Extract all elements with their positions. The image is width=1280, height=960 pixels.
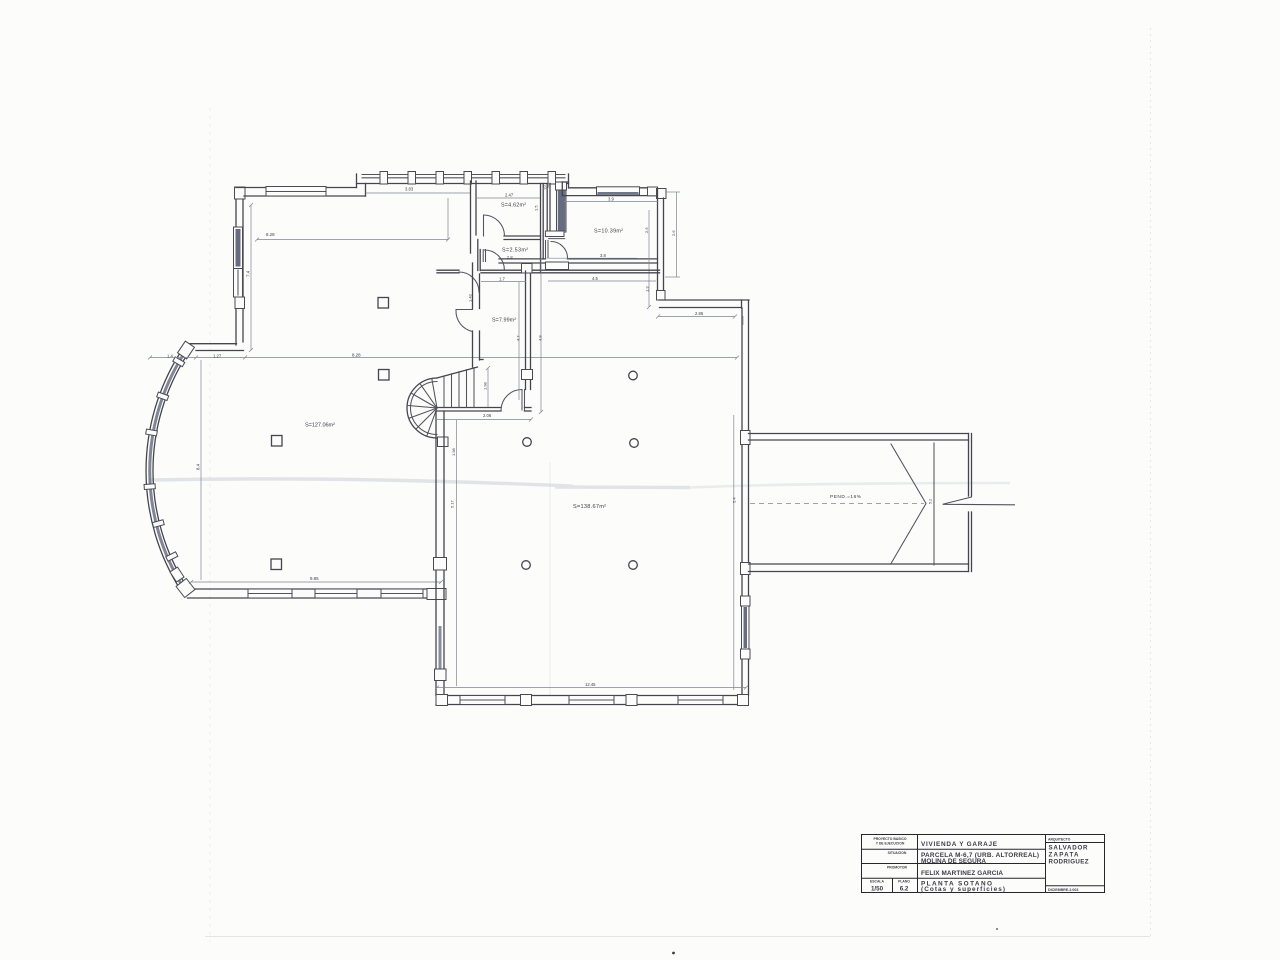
- svg-text:PLANO: PLANO: [898, 880, 910, 884]
- svg-text:2.8: 2.8: [507, 255, 513, 260]
- svg-text:DICIEMBRE-2.003: DICIEMBRE-2.003: [1048, 888, 1078, 892]
- svg-text:1.98: 1.98: [451, 447, 456, 456]
- svg-text:4.5: 4.5: [592, 276, 598, 281]
- svg-text:4.7: 4.7: [516, 335, 521, 341]
- svg-text:S=127.06m²: S=127.06m²: [305, 423, 335, 429]
- svg-text:2.85: 2.85: [695, 311, 704, 316]
- svg-text:8.28: 8.28: [266, 232, 275, 237]
- svg-text:PROMOTOR: PROMOTOR: [887, 866, 907, 870]
- svg-text:MOLINA DE SEGURA: MOLINA DE SEGURA: [921, 858, 986, 865]
- svg-text:1.3: 1.3: [645, 286, 650, 292]
- svg-text:2.6: 2.6: [644, 227, 649, 233]
- svg-text:8.28: 8.28: [352, 353, 361, 358]
- svg-text:2.06: 2.06: [483, 413, 492, 418]
- svg-text:S=10.39m²: S=10.39m²: [594, 229, 623, 235]
- svg-text:7.4: 7.4: [246, 270, 251, 277]
- svg-text:SALVADOR: SALVADOR: [1049, 845, 1089, 852]
- svg-text:1.98: 1.98: [483, 381, 488, 390]
- svg-text:5.2: 5.2: [929, 499, 933, 504]
- svg-text:3.8: 3.8: [600, 253, 606, 258]
- svg-text:6.2: 6.2: [900, 886, 909, 893]
- svg-text:9.85: 9.85: [310, 576, 319, 581]
- svg-text:2.47: 2.47: [505, 193, 514, 198]
- svg-text:S=7.99m²: S=7.99m²: [492, 318, 516, 324]
- svg-text:0.8: 0.8: [544, 183, 550, 188]
- svg-text:5.4: 5.4: [732, 497, 737, 503]
- svg-text:3.9: 3.9: [608, 197, 614, 202]
- svg-text:ZAPATA: ZAPATA: [1049, 852, 1080, 859]
- svg-text:S=4.62m²: S=4.62m²: [501, 203, 526, 209]
- svg-text:12.45: 12.45: [585, 682, 596, 687]
- svg-text:S=2.53m²: S=2.53m²: [502, 248, 528, 254]
- svg-text:Y DE EJECUCION: Y DE EJECUCION: [876, 842, 905, 846]
- svg-text:(Cotas y superficies): (Cotas y superficies): [921, 886, 1005, 893]
- svg-text:ESCALA: ESCALA: [870, 880, 884, 884]
- svg-text:PROYECTO BASICO: PROYECTO BASICO: [873, 837, 906, 841]
- svg-text:2.6: 2.6: [671, 230, 676, 236]
- svg-text:RODRIGUEZ: RODRIGUEZ: [1049, 859, 1089, 866]
- svg-text:S=138.67m²: S=138.67m²: [573, 504, 606, 510]
- svg-text:SITUACION: SITUACION: [888, 851, 907, 855]
- svg-text:ARQUITECTO: ARQUITECTO: [1048, 838, 1071, 842]
- svg-text:1.43: 1.43: [468, 293, 473, 302]
- svg-text:1.4: 1.4: [167, 354, 173, 359]
- svg-text:1.5: 1.5: [534, 205, 539, 211]
- svg-text:3.83: 3.83: [405, 187, 414, 192]
- svg-text:1.7: 1.7: [499, 277, 505, 282]
- svg-text:8.4: 8.4: [196, 463, 201, 470]
- svg-text:VIVIENDA Y GARAJE: VIVIENDA Y GARAJE: [921, 841, 998, 848]
- svg-text:FELIX MARTINEZ GARCIA: FELIX MARTINEZ GARCIA: [921, 870, 1003, 877]
- svg-text:1/50: 1/50: [871, 886, 884, 893]
- svg-text:5.17: 5.17: [450, 499, 455, 508]
- svg-text:1.27: 1.27: [213, 354, 222, 359]
- svg-text:4.8: 4.8: [538, 335, 543, 341]
- svg-text:PEND.=16%: PEND.=16%: [830, 494, 862, 500]
